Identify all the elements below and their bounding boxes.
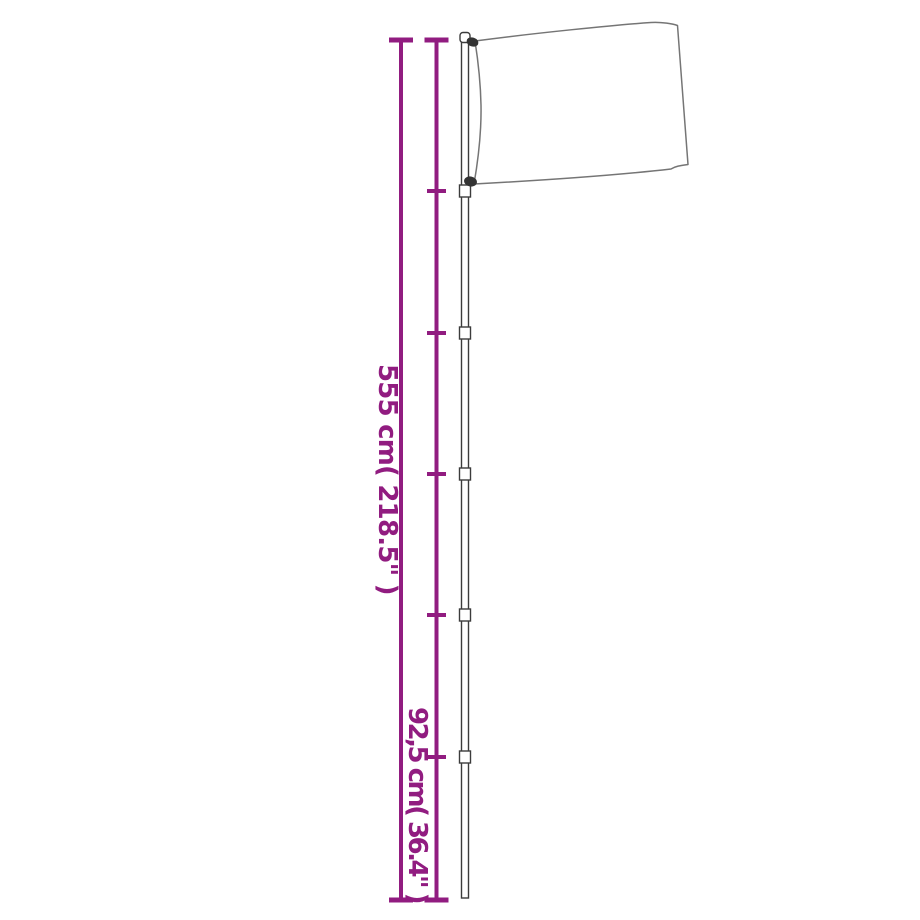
- pole-joint-collar: [460, 185, 471, 197]
- flagpole: [460, 33, 471, 899]
- flag: [474, 22, 688, 184]
- pole-joint-collar: [460, 468, 471, 480]
- pole-joint-collar: [460, 327, 471, 339]
- pole-joint-collar: [460, 609, 471, 621]
- diagram-canvas: 555 cm( 218.5" ) 92,5 cm( 36.4" ): [0, 0, 920, 920]
- section-height-label: 92,5 cm( 36.4" ): [402, 707, 432, 905]
- flagpole-dimension-diagram: 555 cm( 218.5" ) 92,5 cm( 36.4" ): [0, 0, 920, 920]
- total-height-label: 555 cm( 218.5" ): [372, 364, 402, 596]
- pole-joint-collar: [460, 751, 471, 763]
